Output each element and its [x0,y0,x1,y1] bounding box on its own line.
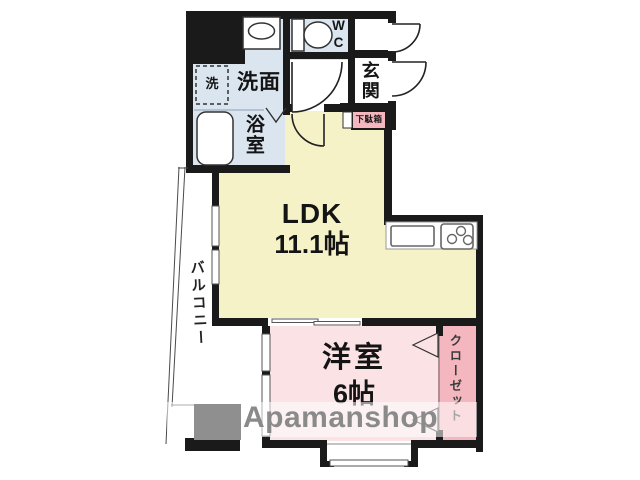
bathroom-label: 浴室 [242,114,264,176]
toilet-icon [292,19,332,51]
ldk-area-label: 11.1帖 [232,230,392,260]
window [262,334,270,371]
storage-door-arc [392,24,420,52]
kitchen-counter-icon [386,222,477,249]
watermark-brand-text: Apamanshop [243,401,438,435]
bay-window [320,440,418,467]
washbasin-icon [243,17,280,49]
entrance-door-arc [392,62,426,96]
floorplan-image: 洗面 洗 浴室 WC 玄関 下駄箱 LDK 11.1帖 洋室 6帖 クローゼット… [0,0,640,480]
toilet-label: WC [330,18,347,52]
watermark-logo-box [194,404,241,440]
washing-machine-label: 洗 [196,77,228,92]
shoe-cabinet-label: 下駄箱 [352,115,386,125]
western-room-label: 洋室 [298,342,410,375]
entrance-label: 玄関 [359,61,380,109]
kitchen-sink-icon [391,226,434,246]
sliding-door [268,318,362,326]
bathtub-icon [197,112,233,165]
window [212,206,219,246]
washroom-label: 洗面 [226,71,292,95]
ldk-label: LDK [247,198,377,230]
door-pocket-box [343,112,352,128]
pipe-shaft-block [193,14,245,64]
window [212,250,219,284]
